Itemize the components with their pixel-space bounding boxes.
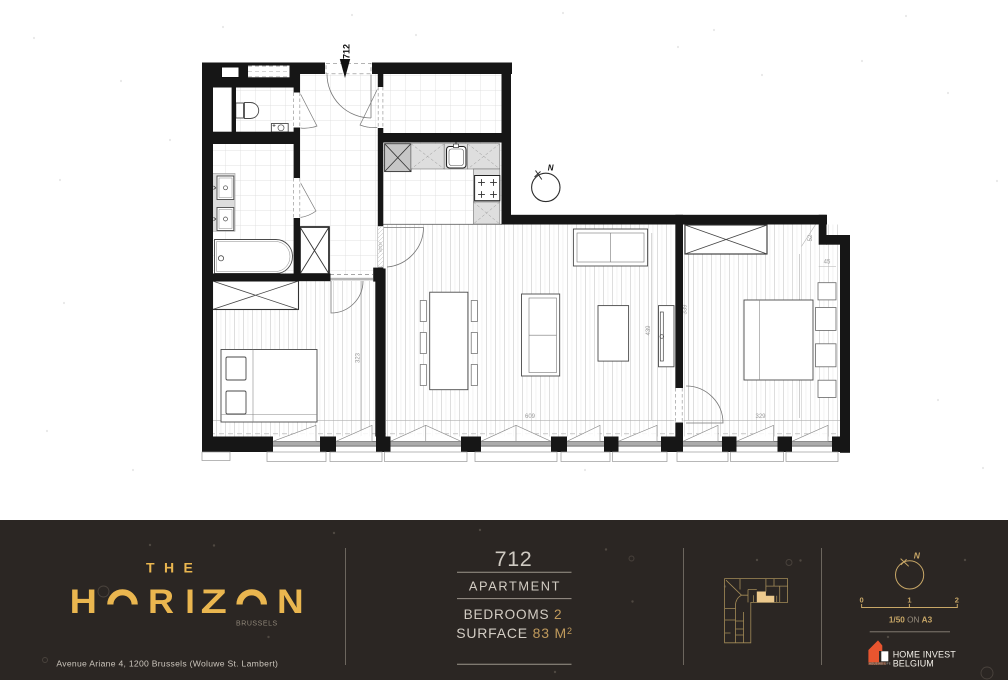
svg-text:712: 712	[495, 547, 533, 571]
svg-text:Avenue Ariane 4, 1200 Brussels: Avenue Ariane 4, 1200 Brussels (Woluwe S…	[56, 659, 278, 669]
svg-text:N: N	[914, 550, 921, 560]
svg-text:45: 45	[824, 260, 831, 266]
svg-text:N: N	[548, 164, 554, 173]
svg-text:BEDROOMS 2: BEDROOMS 2	[464, 607, 563, 622]
svg-text:1: 1	[907, 596, 911, 605]
svg-text:439: 439	[646, 325, 652, 336]
svg-text:I: I	[185, 583, 195, 621]
svg-text:N: N	[277, 583, 304, 621]
svg-text:R: R	[148, 583, 174, 621]
svg-text:BRUSSELS: BRUSSELS	[236, 621, 278, 628]
svg-text:712: 712	[341, 44, 351, 59]
svg-text:Z: Z	[201, 583, 227, 621]
svg-text:APARTMENT: APARTMENT	[469, 579, 561, 594]
svg-text:329: 329	[755, 414, 766, 420]
svg-text:1/50 ON A3: 1/50 ON A3	[889, 616, 933, 625]
svg-text:609: 609	[525, 414, 536, 420]
svg-text:THE: THE	[146, 559, 202, 575]
svg-text:SURFACE 83 M2: SURFACE 83 M2	[456, 625, 573, 641]
svg-text:BELGIUM: BELGIUM	[893, 659, 934, 669]
svg-text:92/213: 92/213	[379, 242, 383, 252]
svg-text:323: 323	[356, 352, 362, 363]
svg-text:HOUSING LIFE: HOUSING LIFE	[869, 662, 891, 666]
svg-text:0: 0	[860, 596, 864, 605]
svg-text:H: H	[70, 583, 97, 621]
svg-text:52: 52	[808, 234, 814, 241]
svg-text:339: 339	[683, 304, 689, 315]
svg-text:2: 2	[955, 596, 959, 605]
